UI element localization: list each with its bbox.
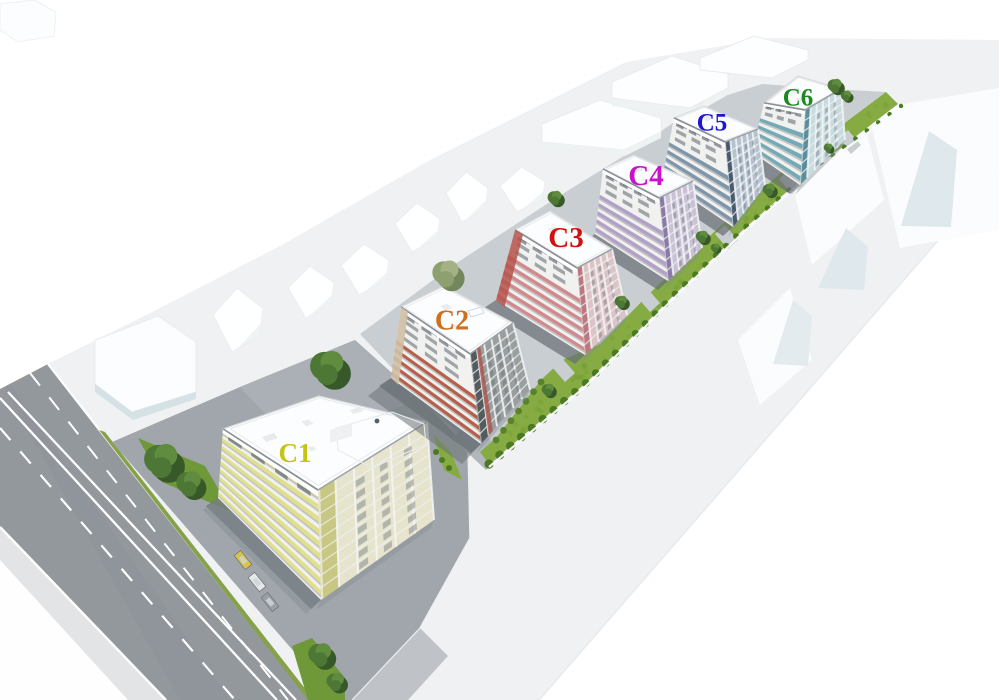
svg-text:C2: C2: [435, 306, 469, 337]
svg-text:C1: C1: [279, 438, 312, 468]
svg-text:C6: C6: [783, 85, 814, 112]
svg-text:C3: C3: [548, 222, 583, 254]
svg-text:C4: C4: [628, 160, 663, 192]
svg-text:C5: C5: [697, 110, 728, 137]
